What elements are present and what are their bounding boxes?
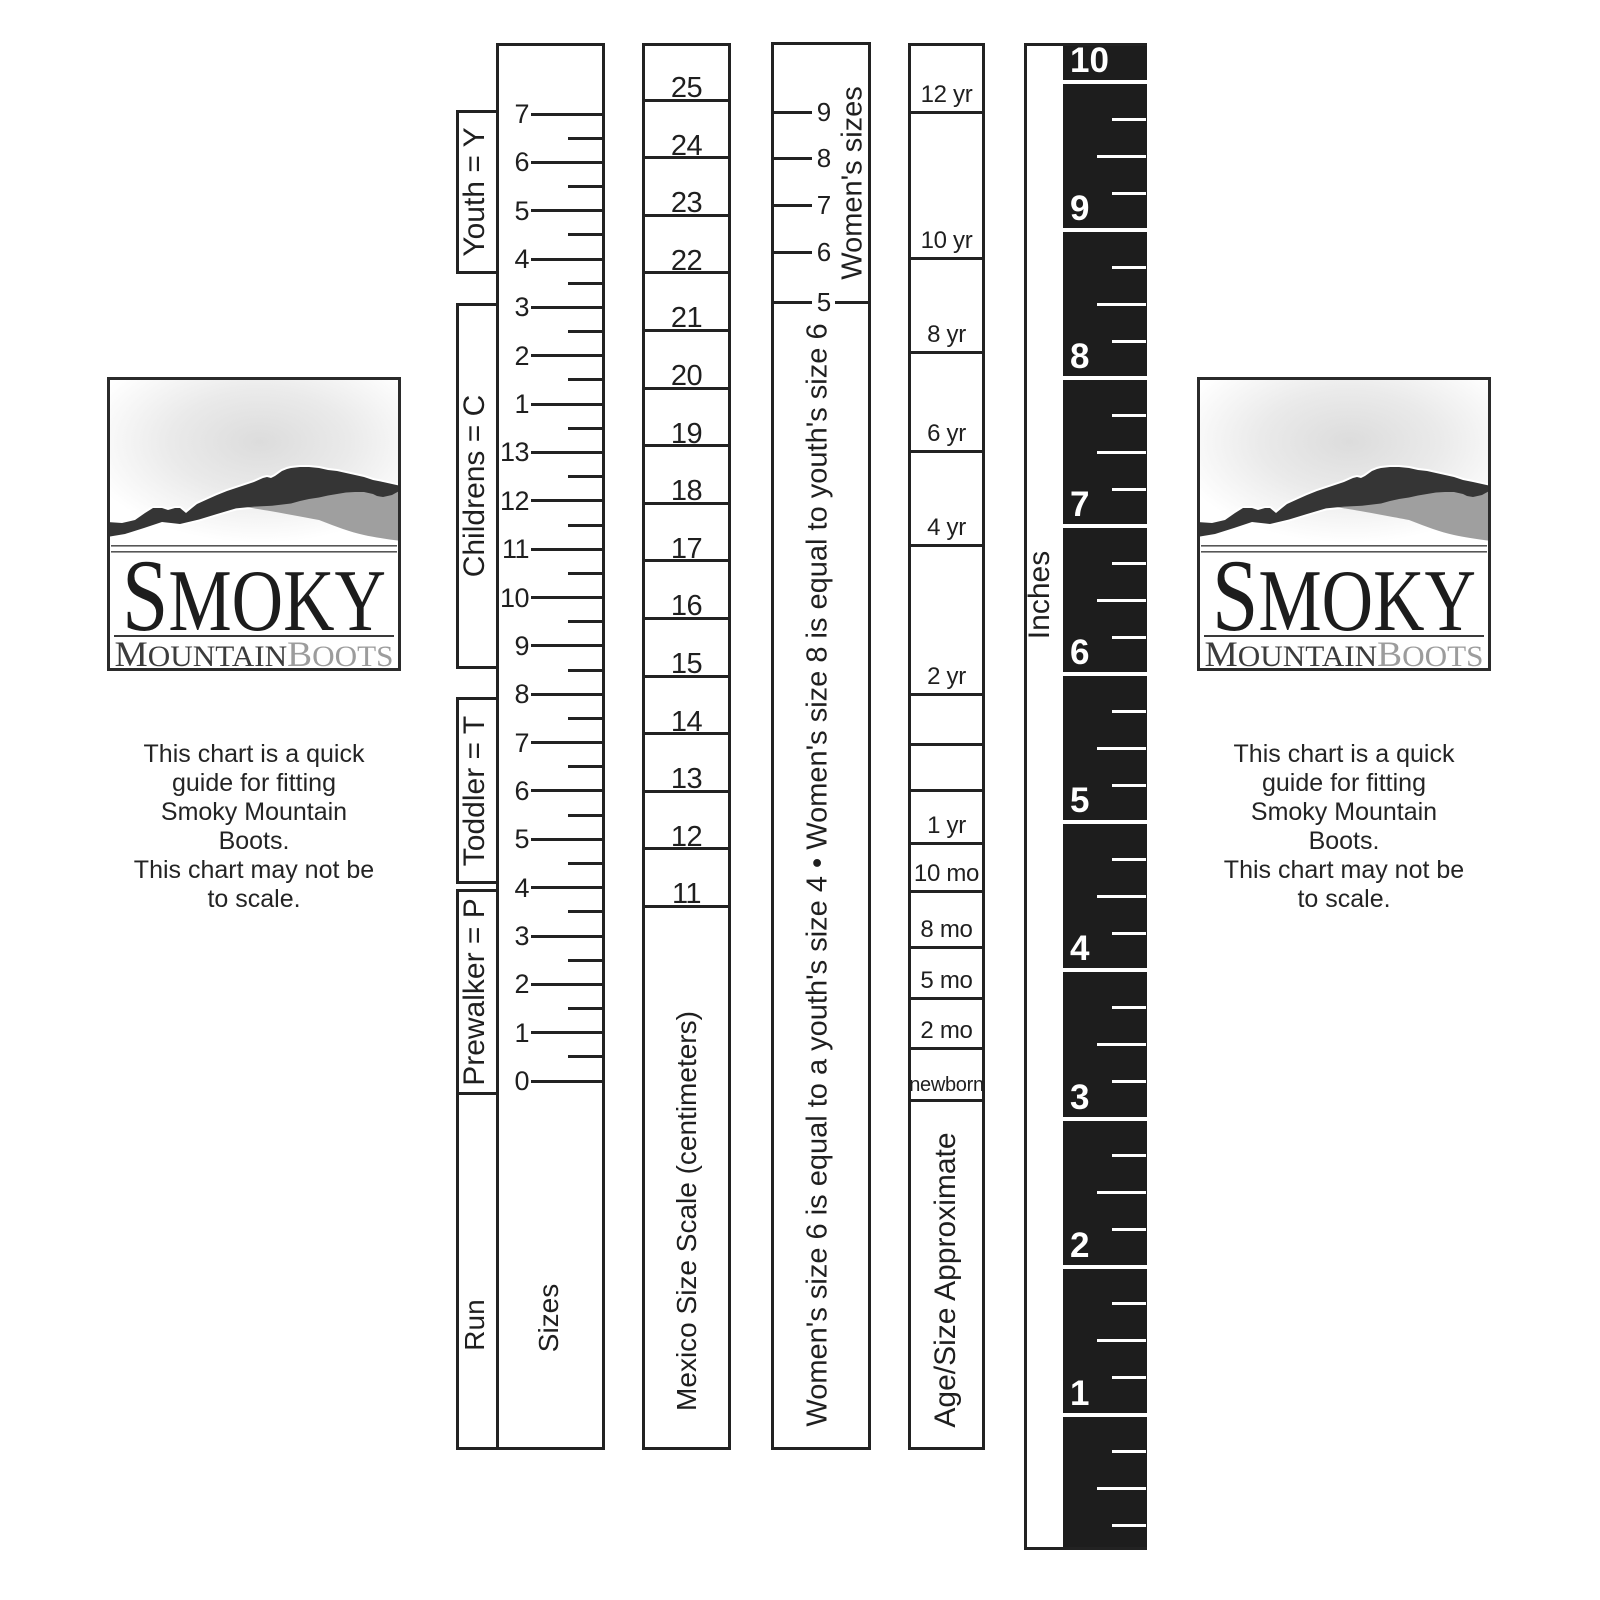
svg-text:MOUNTAINBOOTS: MOUNTAINBOOTS [115, 634, 394, 671]
svg-text:MOUNTAINBOOTS: MOUNTAINBOOTS [1205, 634, 1484, 671]
